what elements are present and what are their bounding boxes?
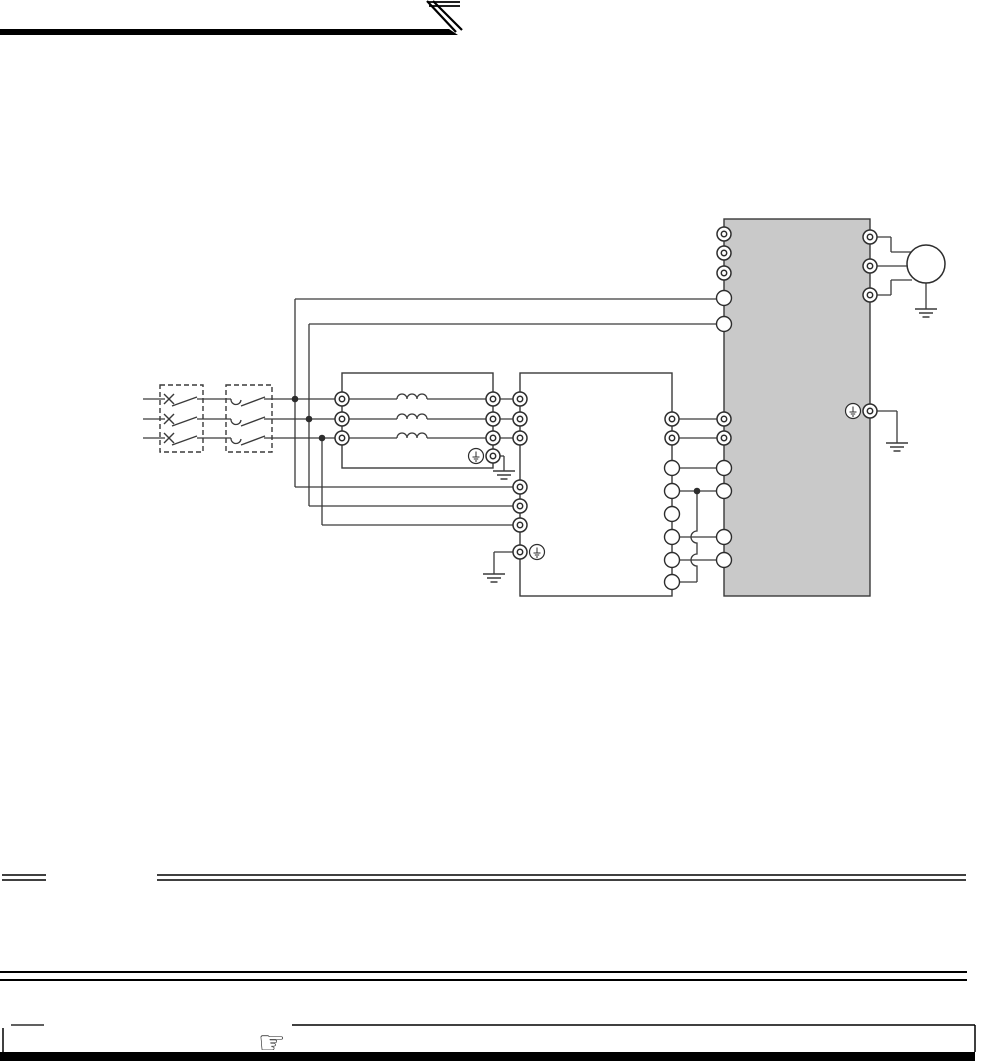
terminal-double [513, 545, 527, 559]
terminal-double [863, 230, 877, 244]
noise-filter-box [520, 373, 672, 596]
terminal-double [335, 431, 349, 445]
terminal-double [717, 412, 731, 426]
manual-page: ☞ [0, 0, 994, 1061]
contactor-cup-contact [231, 438, 241, 444]
terminal-plain [717, 317, 732, 332]
junction-dot [292, 396, 299, 403]
terminal-plain [717, 484, 732, 499]
terminal-plain [717, 291, 732, 306]
terminal-plain [717, 530, 732, 545]
terminal-double [486, 449, 500, 463]
terminal-plain [665, 507, 680, 522]
terminal-plain [665, 553, 680, 568]
switch-blade [241, 397, 265, 406]
contactor-cup-contact [231, 419, 241, 425]
terminal-double [486, 431, 500, 445]
junction-dot [306, 416, 313, 423]
switch-blade [241, 417, 265, 426]
terminal-double [513, 499, 527, 513]
terminal-plain [665, 484, 680, 499]
terminal-double [717, 246, 731, 260]
terminal-double [486, 392, 500, 406]
terminal-double [335, 412, 349, 426]
switch-blade [172, 397, 197, 406]
terminal-double [513, 431, 527, 445]
motor-circle [907, 245, 945, 283]
junction-dot [319, 435, 326, 442]
terminal-double [665, 431, 679, 445]
terminal-plain [665, 530, 680, 545]
switch-blade [241, 436, 265, 445]
terminal-plain [717, 461, 732, 476]
terminal-plain [717, 553, 732, 568]
terminal-double [513, 480, 527, 494]
wiring-diagram-canvas [0, 0, 994, 1061]
terminal-double [863, 404, 877, 418]
terminal-double [717, 266, 731, 280]
terminal-double [665, 412, 679, 426]
terminal-double [717, 227, 731, 241]
terminal-double [513, 518, 527, 532]
terminal-double [717, 431, 731, 445]
terminal-plain [665, 461, 680, 476]
terminal-double [863, 259, 877, 273]
switch-blade [172, 436, 197, 445]
switch-blade [172, 417, 197, 426]
contactor-cup-contact [231, 399, 241, 405]
footer-bottom-bar [0, 1052, 975, 1061]
terminal-double [513, 412, 527, 426]
chapter-header-bar [0, 29, 458, 35]
terminal-double [513, 392, 527, 406]
pointing-hand-icon: ☞ [258, 1028, 286, 1059]
terminal-double [863, 288, 877, 302]
junction-dot [694, 488, 701, 495]
terminal-plain [665, 575, 680, 590]
terminal-double [486, 412, 500, 426]
terminal-double [335, 392, 349, 406]
